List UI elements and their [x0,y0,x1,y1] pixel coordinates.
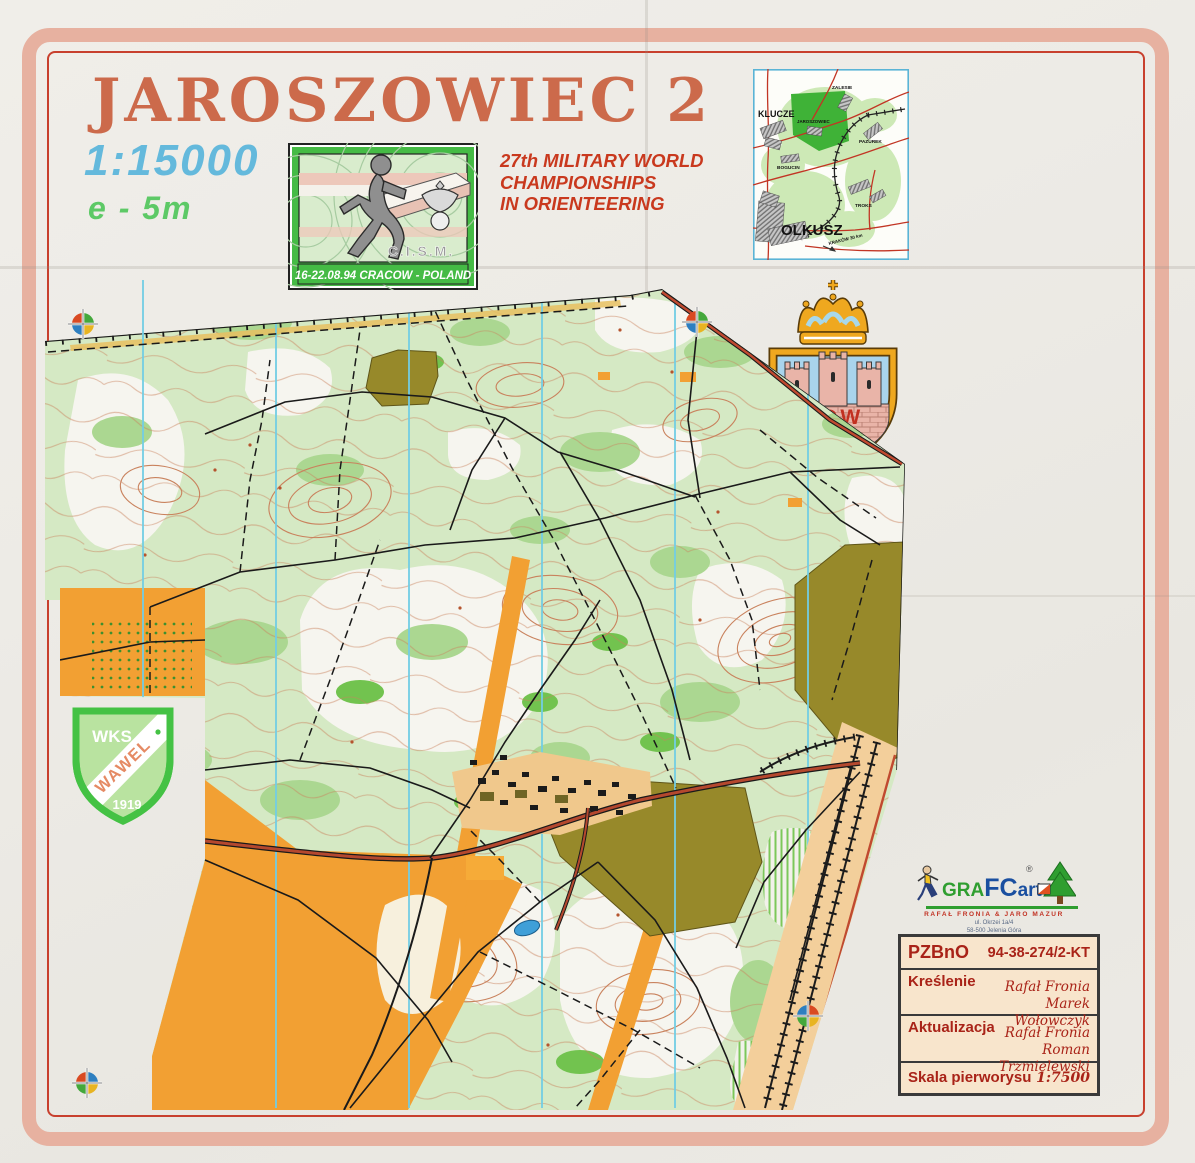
update-name-1: Rafał Fronia [995,1025,1090,1042]
drawing-label: Kreślenie [908,973,976,1011]
inset-label-troks: TROKS [855,203,873,209]
orienteering-map [40,280,910,1120]
grafcart-tree-icon [1036,860,1076,906]
registered-trademark: ® [1026,864,1033,874]
credits-map-number: 94-38-274/2-KT [988,945,1090,961]
contour-interval-label: e - 5m [88,190,192,227]
control-flag-icon [1038,884,1050,894]
championship-line-3: IN ORIENTEERING [500,193,715,215]
grafcart-logo: GRAFCart ® RAFAŁ FRONIA & JARO MAZUR ul.… [898,858,1090,935]
club-badge: WKS WAWEL 1919 [70,705,176,827]
club-org: WKS [92,727,132,746]
grafcart-rule [926,906,1078,909]
grafcart-runner-icon [912,864,946,904]
authors-line: RAFAŁ FRONIA & JARO MAZUR [898,911,1090,918]
base-scale-value: 1:7500 [1036,1070,1090,1086]
scanned-map-sheet: JAROSZOWIEC 2 1:15000 e - 5m 27th MILITA… [0,0,1195,1163]
grafcart-wordmark: GRAFCart [942,874,1042,903]
inset-label-pazurek: PAZUREK [859,139,882,145]
drawing-name-1: Rafał Fronia [976,979,1090,996]
cism-acronym: C.I.S.M. [388,243,455,259]
championship-line-1: 27th MILITARY WORLD [500,150,715,172]
credits-row-drawing: Kreślenie Rafał Fronia Marek Wołowczyk [901,970,1097,1016]
credits-org-label: PZBnO [908,942,969,963]
inset-label-klucze: KLUCZE [758,109,795,119]
update-label: Aktualizacja [908,1019,995,1058]
credits-row-base-scale: Skala pierworysu 1:7500 [901,1063,1097,1092]
inset-label-zalesie: ZALESIE [832,85,853,91]
wordmark-fc: FC [984,874,1017,902]
drawing-names: Rafał Fronia Marek Wołowczyk [976,973,1090,1011]
address-block: ul. Okrzei 1a/4 58-500 Jelenia Góra [898,920,1090,935]
registration-mark-top-left [68,309,98,339]
credits-row-pzbno: PZBnO 94-38-274/2-KT [901,937,1097,970]
championship-title: 27th MILITARY WORLD CHAMPIONSHIPS IN ORI… [500,150,715,215]
championship-line-2: CHAMPIONSHIPS [500,172,715,194]
wordmark-gra: GRA [942,880,984,901]
credits-row-update: Aktualizacja Rafał Fronia Roman Trzmiele… [901,1016,1097,1063]
club-year: 1919 [113,797,142,812]
address-line-1: ul. Okrzei 1a/4 [898,920,1090,928]
inset-label-jaroszowiec: JAROSZOWIEC [797,119,831,124]
inset-label-bogucin: BOGUCIN [777,165,800,171]
registration-mark-bottom-right [793,1001,823,1031]
credits-table: PZBnO 94-38-274/2-KT Kreślenie Rafał Fro… [898,934,1100,1096]
base-scale-label: Skala pierworysu [908,1069,1031,1086]
band-dot-upper [155,729,160,734]
cism-badge: C.I.S.M. 16-22.08.94 CRACOW - POLAND [288,143,478,290]
map-scale-label: 1:15000 [84,136,259,186]
registration-mark-bottom-left [72,1068,102,1098]
page-title: JAROSZOWIEC 2 [92,66,712,136]
inset-label-olkusz: OLKUSZ [781,222,843,239]
inset-map: KLUCZE ZALESIE JAROSZOWIEC PAZUREK BOGUC… [753,69,909,260]
update-names: Rafał Fronia Roman Trzmielewski [995,1019,1090,1058]
registration-mark-top-right [682,307,712,337]
band-dot-lower [89,797,94,802]
